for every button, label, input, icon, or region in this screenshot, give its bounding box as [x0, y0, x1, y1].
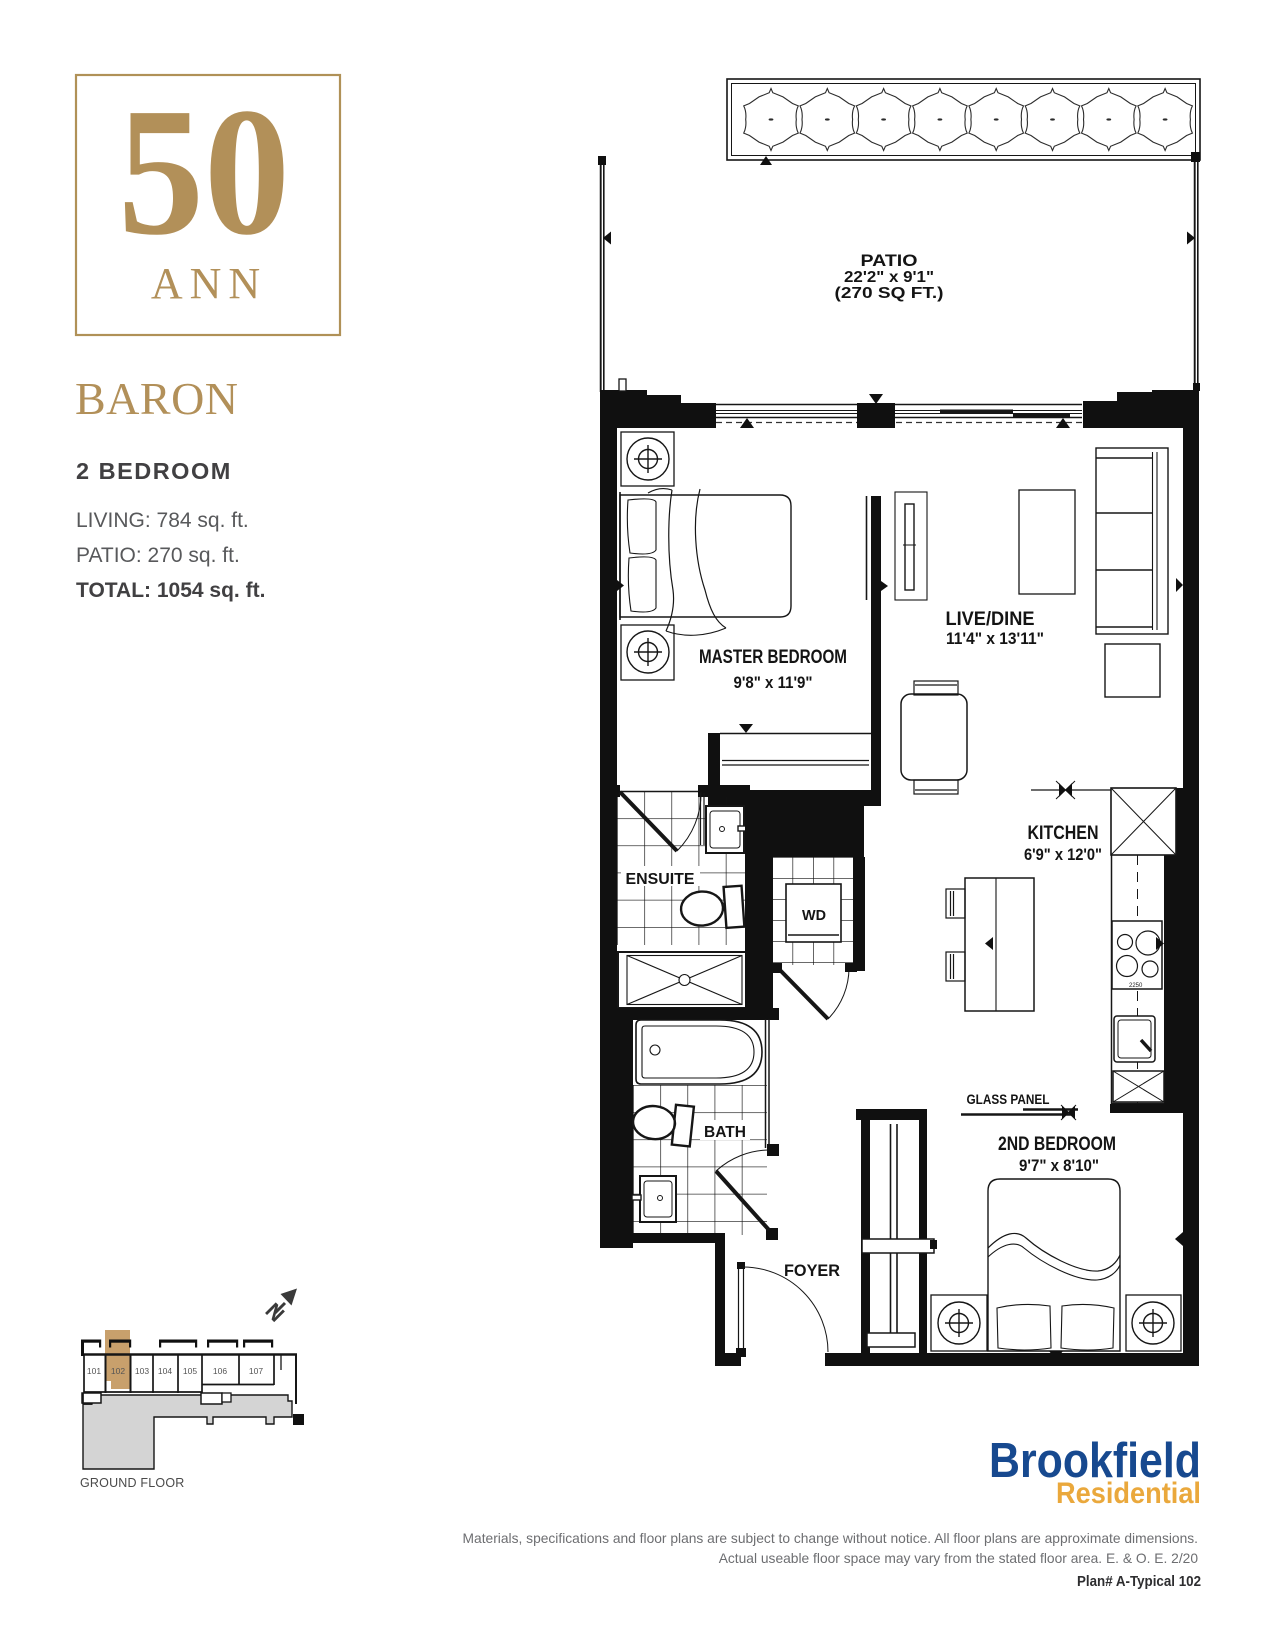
svg-text:22'2" x 9'1": 22'2" x 9'1"	[844, 269, 934, 286]
svg-text:105: 105	[183, 1366, 197, 1376]
svg-text:Residential: Residential	[1056, 1477, 1201, 1510]
svg-text:FOYER: FOYER	[784, 1261, 840, 1280]
svg-text:9'8" x 11'9": 9'8" x 11'9"	[734, 673, 813, 692]
svg-text:2ND BEDROOM: 2ND BEDROOM	[998, 1134, 1116, 1155]
svg-text:LIVING: 784 sq. ft.: LIVING: 784 sq. ft.	[76, 509, 249, 532]
svg-text:TOTAL: 1054 sq. ft.: TOTAL: 1054 sq. ft.	[76, 579, 265, 602]
svg-text:107: 107	[249, 1366, 263, 1376]
svg-text:BARON: BARON	[75, 373, 239, 424]
svg-text:GROUND FLOOR: GROUND FLOOR	[80, 1476, 185, 1490]
svg-text:106: 106	[213, 1366, 227, 1376]
svg-text:ANN: ANN	[151, 259, 267, 308]
svg-text:104: 104	[158, 1366, 172, 1376]
svg-text:102: 102	[111, 1366, 125, 1376]
svg-text:2250: 2250	[1129, 983, 1143, 989]
svg-text:103: 103	[135, 1366, 149, 1376]
svg-text:Materials, specifications and: Materials, specifications and floor plan…	[463, 1531, 1198, 1546]
svg-text:PATIO: PATIO	[861, 251, 918, 270]
svg-text:MASTER BEDROOM: MASTER BEDROOM	[699, 647, 847, 668]
svg-text:101: 101	[87, 1366, 101, 1376]
svg-text:11'4" x 13'11": 11'4" x 13'11"	[946, 629, 1044, 648]
svg-text:2 BEDROOM: 2 BEDROOM	[76, 458, 232, 484]
svg-text:6'9" x 12'0": 6'9" x 12'0"	[1024, 845, 1102, 864]
svg-text:50: 50	[118, 70, 290, 273]
svg-text:LIVE/DINE: LIVE/DINE	[946, 608, 1035, 630]
svg-text:(270 SQ FT.): (270 SQ FT.)	[835, 285, 944, 302]
svg-text:Actual useable floor space may: Actual useable floor space may vary from…	[719, 1551, 1199, 1566]
svg-text:BATH: BATH	[704, 1124, 746, 1141]
svg-text:GLASS PANEL: GLASS PANEL	[967, 1092, 1050, 1107]
svg-text:PATIO: 270 sq. ft.: PATIO: 270 sq. ft.	[76, 544, 240, 567]
svg-text:Plan# A-Typical 102: Plan# A-Typical 102	[1077, 1574, 1201, 1590]
svg-text:WD: WD	[802, 907, 826, 924]
svg-text:KITCHEN: KITCHEN	[1028, 822, 1099, 844]
svg-text:9'7" x 8'10": 9'7" x 8'10"	[1019, 1156, 1099, 1175]
svg-text:ENSUITE: ENSUITE	[626, 871, 695, 888]
